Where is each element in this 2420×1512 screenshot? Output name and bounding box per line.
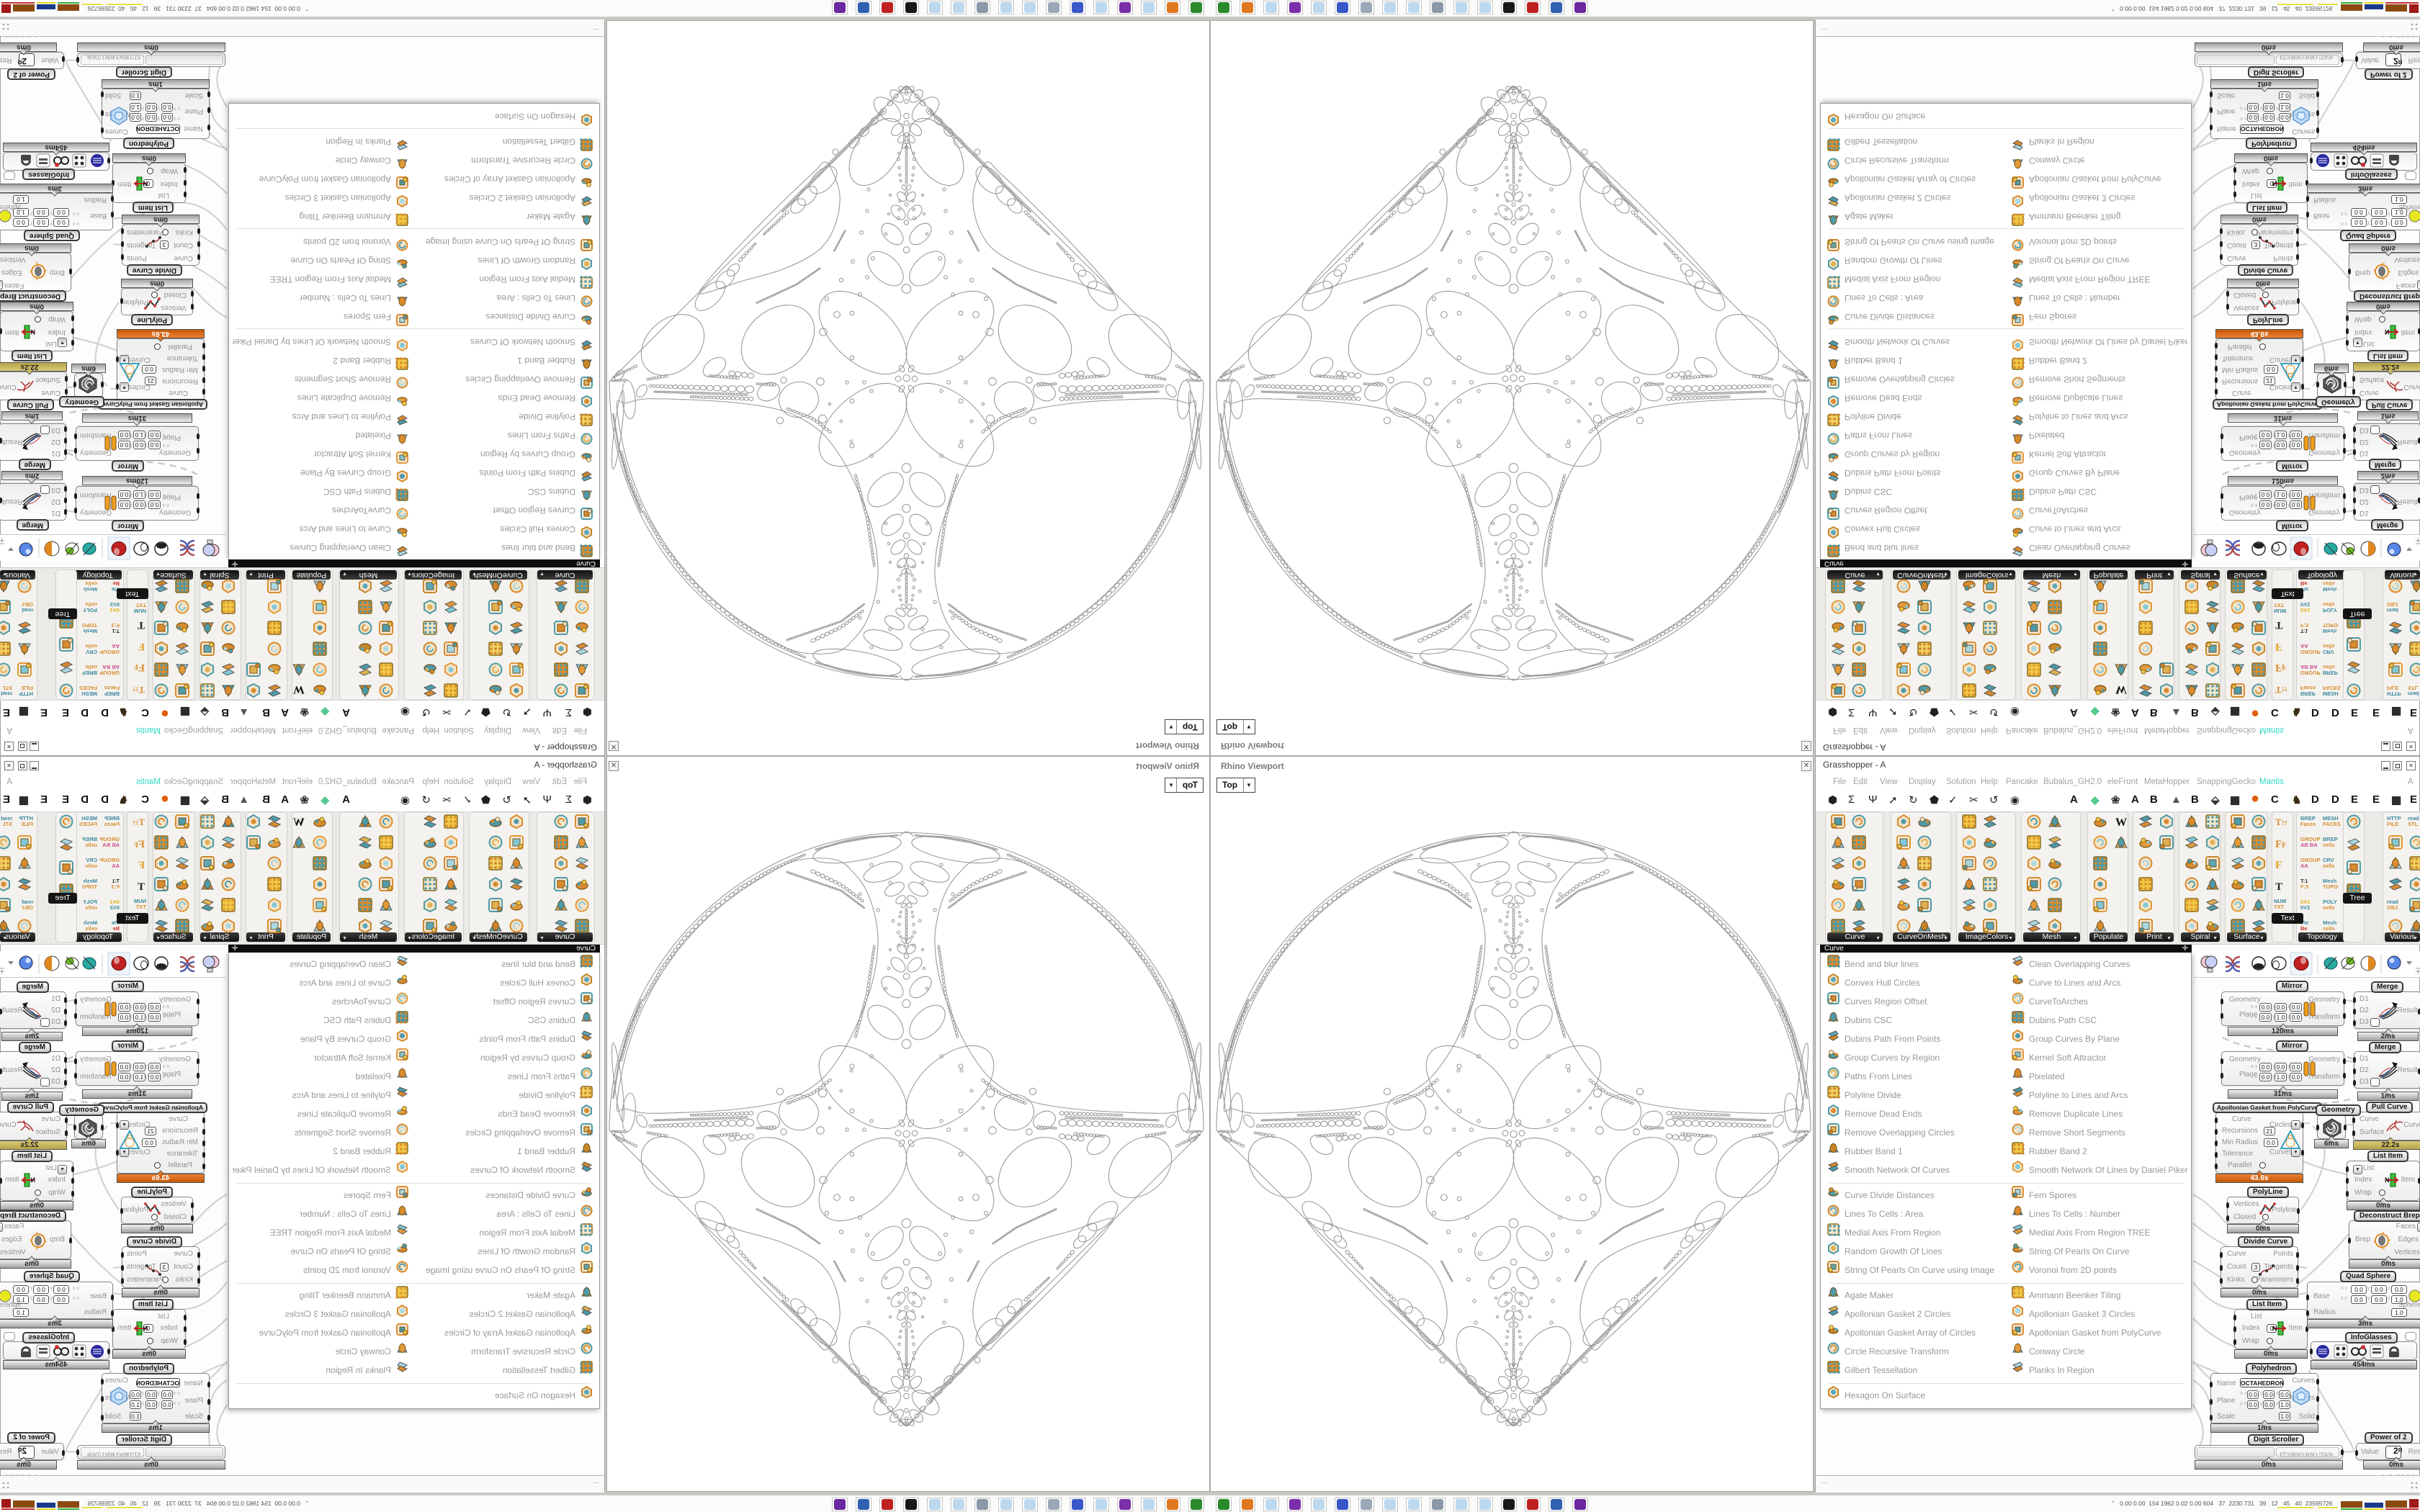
svg-text:N: N xyxy=(31,1176,36,1184)
svg-text:N: N xyxy=(2272,1325,2277,1332)
svg-text:N: N xyxy=(2385,328,2390,336)
svg-text:N: N xyxy=(2385,1176,2390,1184)
svg-text:N: N xyxy=(31,328,36,336)
svg-text:N: N xyxy=(143,1325,148,1332)
svg-text:N: N xyxy=(143,180,148,187)
svg-text:N: N xyxy=(2272,180,2277,187)
